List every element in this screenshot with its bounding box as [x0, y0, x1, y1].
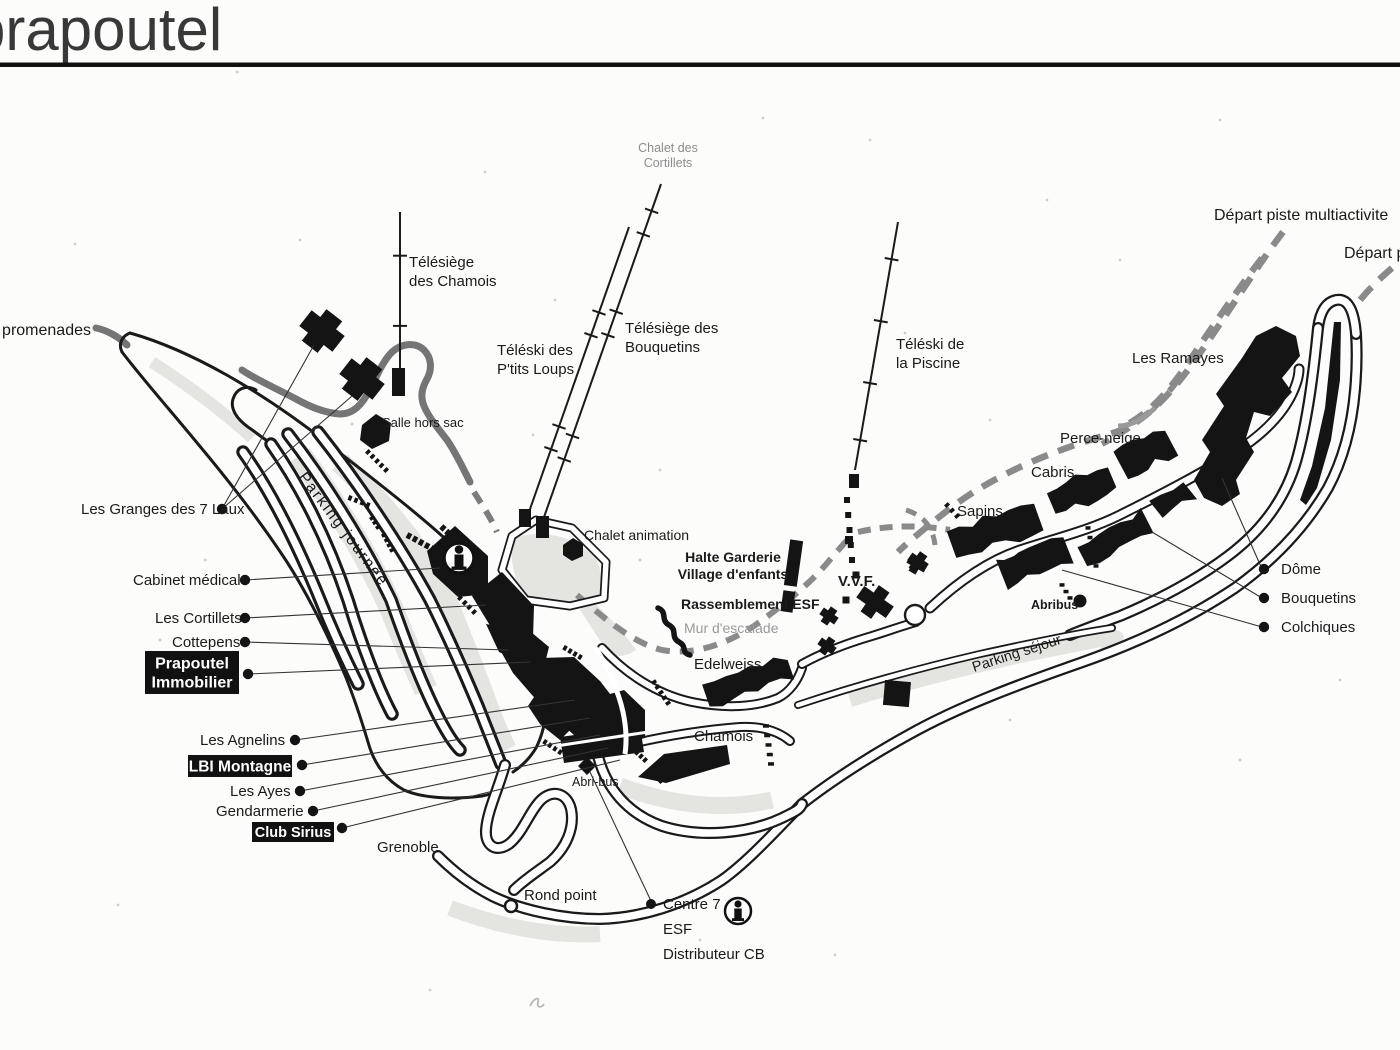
svg-text:Salle hors sac: Salle hors sac [382, 415, 464, 430]
svg-text:ESF: ESF [663, 921, 692, 938]
svg-text:Télésiège: Télésiège [409, 254, 474, 271]
svg-text:Chalet animation: Chalet animation [584, 527, 689, 543]
svg-text:Bouquetins: Bouquetins [1281, 590, 1356, 607]
svg-text:Les Cortillets: Les Cortillets [155, 610, 242, 627]
svg-text:Départ piste multiactivite: Départ piste multiactivite [1214, 207, 1388, 224]
svg-text:Cabinet médical: Cabinet médical [133, 572, 241, 589]
svg-text:Grenoble: Grenoble [377, 839, 439, 856]
svg-text:Téléski des: Téléski des [497, 342, 573, 359]
svg-text:Chalet des: Chalet des [638, 141, 698, 155]
svg-text:Les Ramayes: Les Ramayes [1132, 350, 1224, 367]
svg-text:Rassemblement ESF: Rassemblement ESF [681, 596, 820, 612]
svg-text:Cabris: Cabris [1031, 464, 1074, 481]
svg-text:Dôme: Dôme [1281, 561, 1321, 578]
svg-text:Abri-bus: Abri-bus [572, 775, 619, 789]
svg-text:Les Granges des 7 Laux: Les Granges des 7 Laux [81, 501, 245, 518]
svg-text:Immobilier: Immobilier [152, 675, 233, 692]
svg-text:Télésiège des: Télésiège des [625, 320, 718, 337]
svg-text:Perce-neige: Perce-neige [1060, 430, 1141, 447]
svg-text:Gendarmerie: Gendarmerie [216, 803, 304, 820]
svg-text:Sapins: Sapins [957, 503, 1003, 520]
svg-text:Colchiques: Colchiques [1281, 619, 1355, 636]
svg-text:Halte Garderie: Halte Garderie [685, 549, 781, 565]
svg-text:Les Ayes: Les Ayes [230, 783, 291, 800]
svg-text:Club Sirius: Club Sirius [255, 825, 332, 841]
svg-text:Mur d'escalade: Mur d'escalade [684, 620, 779, 636]
svg-text:des Chamois: des Chamois [409, 273, 497, 290]
svg-text:Départ p: Départ p [1344, 245, 1400, 262]
svg-text:Rond point: Rond point [524, 887, 597, 904]
svg-text:Cottepens: Cottepens [172, 634, 240, 651]
svg-text:Téléski de: Téléski de [896, 336, 964, 353]
svg-text:Prapoutel: Prapoutel [155, 656, 229, 673]
svg-text:Centre 7: Centre 7 [663, 896, 721, 913]
svg-text:promenades: promenades [2, 322, 91, 339]
svg-text:Bouquetins: Bouquetins [625, 339, 700, 356]
svg-text:P'tits Loups: P'tits Loups [497, 361, 574, 378]
svg-text:Distributeur CB: Distributeur CB [663, 946, 765, 963]
svg-text:V.V.F.: V.V.F. [838, 573, 875, 590]
svg-text:prapoutel: prapoutel [0, 0, 222, 63]
svg-text:Village d'enfants: Village d'enfants [678, 566, 789, 582]
svg-text:Edelweiss: Edelweiss [694, 656, 762, 673]
svg-text:Cortillets: Cortillets [644, 156, 693, 170]
svg-text:Abribus: Abribus [1031, 598, 1078, 612]
svg-text:Les Agnelins: Les Agnelins [200, 732, 285, 749]
svg-text:la Piscine: la Piscine [896, 355, 960, 372]
svg-text:LBI Montagne: LBI Montagne [189, 758, 292, 775]
svg-text:Chamois: Chamois [694, 728, 753, 745]
